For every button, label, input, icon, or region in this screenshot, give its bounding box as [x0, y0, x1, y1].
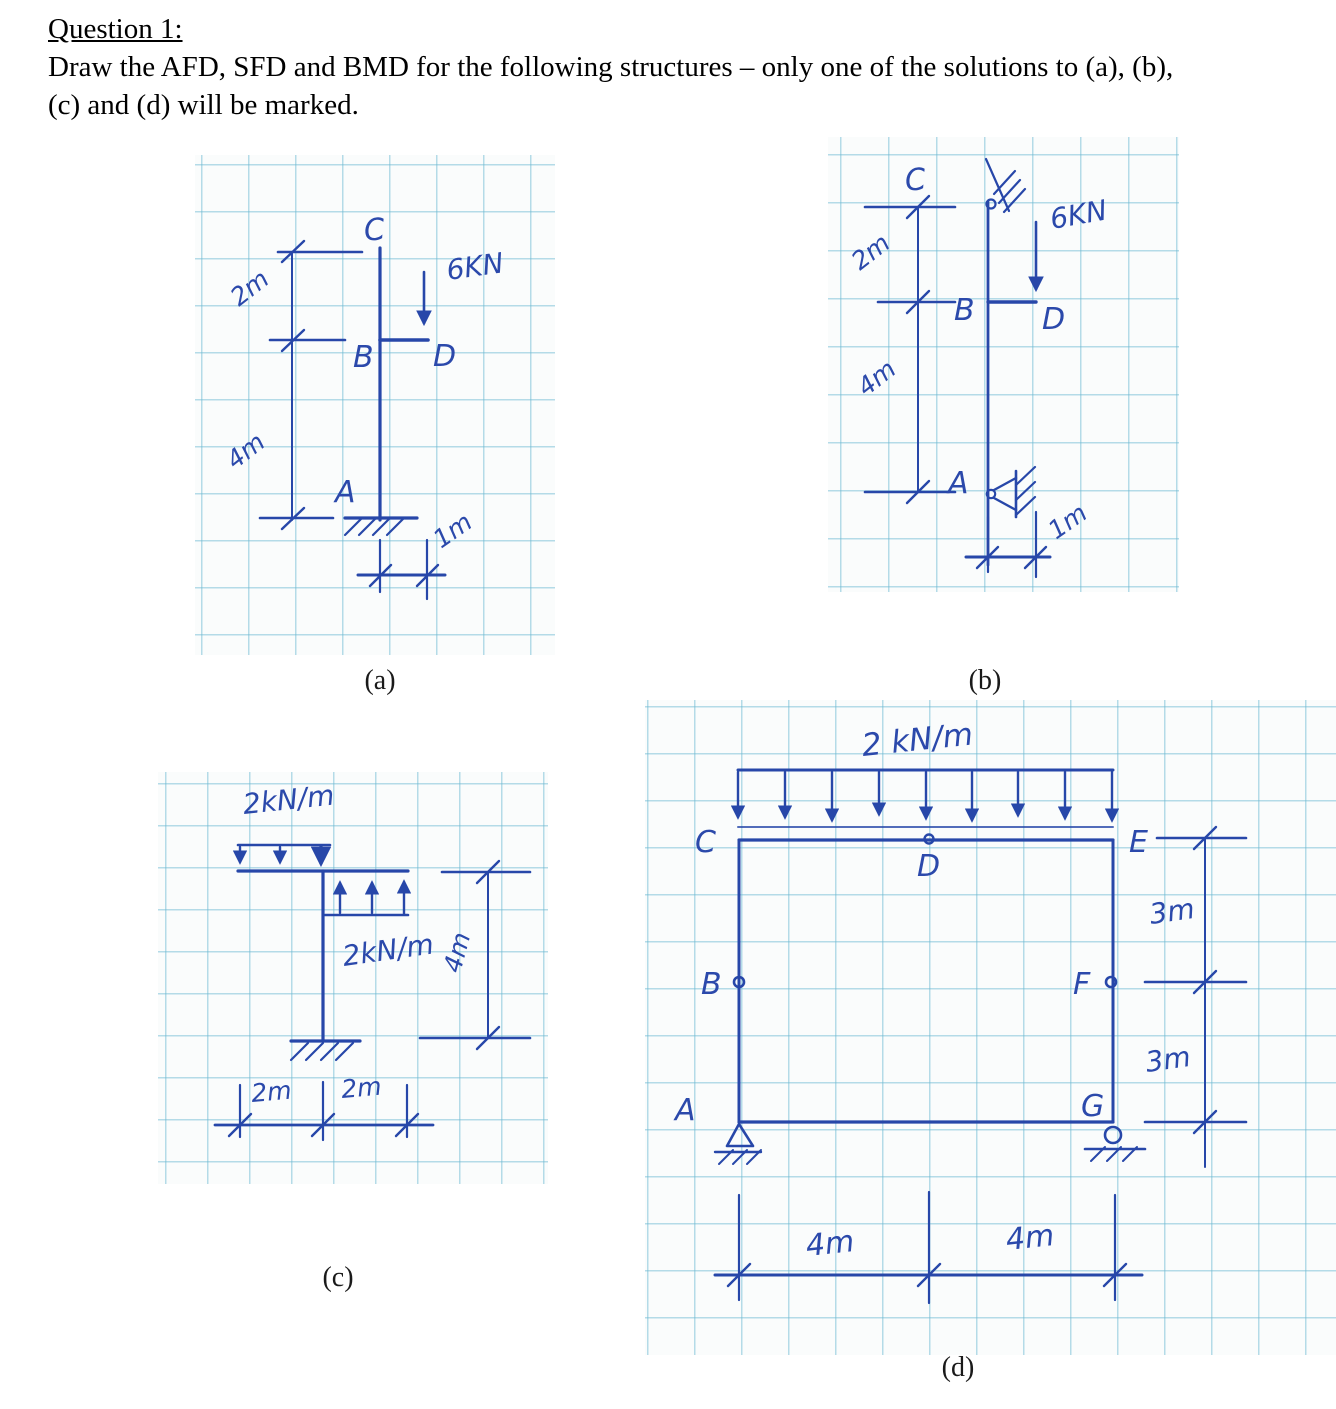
- figure-b-paper: C B D A 6KN 2m 4m 1m: [828, 137, 1179, 592]
- dim-label-4m: 4m: [221, 427, 271, 475]
- span-dimension: [715, 1192, 1142, 1303]
- udl-up-arrows: [325, 882, 408, 915]
- udl-arrows: [738, 770, 1113, 827]
- dim-label-4m: 4m: [438, 929, 476, 975]
- figure-c-caption: (c): [278, 1262, 398, 1294]
- question-header: Question 1: Draw the AFD, SFD and BMD fo…: [48, 10, 1298, 124]
- node-label-B: B: [353, 340, 374, 375]
- height-dimension: [420, 861, 530, 1049]
- node-label-D: D: [433, 339, 456, 374]
- load-label-6kn: 6KN: [1047, 193, 1109, 235]
- figure-a-paper: C B D A 6KN 2m 4m 1m: [195, 155, 555, 655]
- figure-b-caption: (b): [925, 665, 1045, 697]
- dim-label-1m: 1m: [428, 507, 478, 554]
- question-body-line-1: Draw the AFD, SFD and BMD for the follow…: [48, 48, 1298, 86]
- node-label-G: G: [1081, 1089, 1104, 1124]
- dim-label-4m-left: 4m: [804, 1224, 856, 1264]
- node-label-F: F: [1073, 967, 1091, 1002]
- node-label-A: A: [946, 466, 969, 501]
- dim-label-2m: 2m: [225, 264, 275, 312]
- figure-b-drawing: C B D A 6KN 2m 4m 1m: [828, 137, 1179, 592]
- node-label-B: B: [701, 967, 722, 1002]
- figure-d-caption: (d): [898, 1352, 1018, 1384]
- udl-label: 2 kN/m: [860, 717, 975, 764]
- node-label-A: A: [333, 475, 356, 510]
- dim-label-2m-left: 2m: [250, 1076, 293, 1108]
- offset-dimension: [358, 540, 445, 599]
- pin-support-icon: [715, 1124, 761, 1164]
- question-page: Question 1: Draw the AFD, SFD and BMD fo…: [0, 0, 1336, 1409]
- height-dimension: [1145, 827, 1246, 1167]
- load-label-6kn: 6KN: [444, 246, 505, 287]
- offset-dimension: [966, 512, 1050, 577]
- figure-d-paper: 2 kN/m C D E B F A G 3m 3m 4m 4m: [645, 700, 1336, 1355]
- figure-c-paper: 2kN/m 2kN/m 4m 2m 2m: [158, 772, 548, 1184]
- side-pin-support-icon: [987, 467, 1035, 517]
- figure-a-caption: (a): [320, 665, 440, 697]
- span-dimension: [215, 1082, 433, 1140]
- fixed-support-icon: [291, 1041, 360, 1060]
- node-label-A: A: [673, 1093, 696, 1128]
- dim-label-4m: 4m: [852, 354, 902, 402]
- question-body-line-2: (c) and (d) will be marked.: [48, 86, 1298, 124]
- top-pin-support-icon: [986, 159, 1025, 212]
- dim-label-1m: 1m: [1043, 498, 1093, 545]
- figure-c-drawing: 2kN/m 2kN/m 4m 2m 2m: [158, 772, 548, 1184]
- node-label-E: E: [1129, 825, 1148, 860]
- node-label-D: D: [1042, 302, 1065, 337]
- dim-label-4m-right: 4m: [1004, 1218, 1056, 1258]
- udl-right-label: 2kN/m: [340, 927, 435, 972]
- dim-label-2m-right: 2m: [340, 1072, 383, 1104]
- node-label-C: C: [695, 825, 716, 860]
- roller-support-icon: [1085, 1127, 1145, 1161]
- dim-label-2m: 2m: [846, 228, 896, 276]
- question-title: Question 1:: [48, 10, 1298, 48]
- dim-label-3m-top: 3m: [1147, 892, 1196, 931]
- udl-down-arrows: [238, 845, 330, 863]
- node-label-B: B: [954, 293, 975, 328]
- figure-d-drawing: 2 kN/m C D E B F A G 3m 3m 4m 4m: [645, 700, 1336, 1355]
- node-label-D: D: [917, 849, 940, 884]
- udl-left-label: 2kN/m: [241, 779, 336, 821]
- figure-a-drawing: C B D A 6KN 2m 4m 1m: [195, 155, 555, 655]
- dim-label-3m-bottom: 3m: [1143, 1040, 1192, 1079]
- node-label-C: C: [362, 212, 387, 249]
- node-label-C: C: [903, 162, 928, 199]
